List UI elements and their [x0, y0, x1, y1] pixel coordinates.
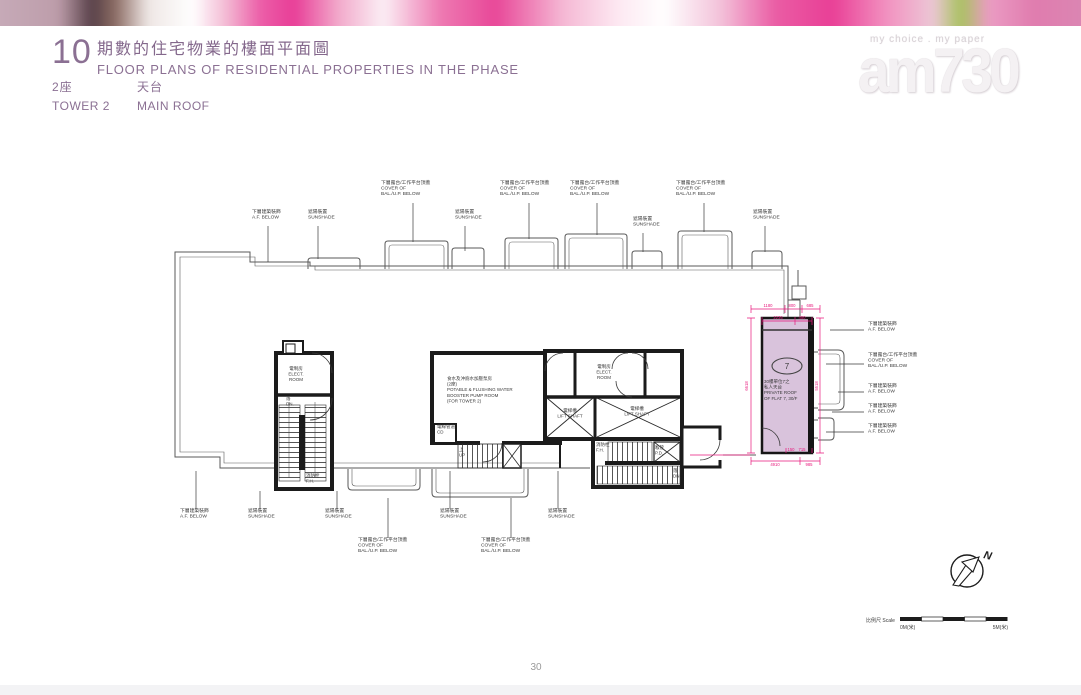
dimension-value: 6618: [744, 381, 749, 391]
callout-af: 下層建築裝飾A.F. BELOW: [826, 422, 897, 435]
scale-start: 0M(米): [900, 624, 916, 631]
flat7-number: 7: [785, 362, 790, 371]
footer-strip: [0, 685, 1081, 695]
callout-cover: 下層露台/工作平台頂蓋COVER OFBAL./U.P. BELOW: [381, 179, 431, 242]
north-letter: N: [982, 549, 994, 563]
callout-af: 下層建築裝飾A.F. BELOW: [832, 402, 897, 415]
callout-sunshade-label: 遮陽裝置SUNSHADE: [753, 208, 780, 221]
callout-cover: 下層露台/工作平台頂蓋COVER OFBAL./U.P. BELOW: [500, 179, 550, 239]
roof-bottom-tabs: [348, 469, 528, 497]
roof-right-tabs: [818, 350, 844, 440]
callout-sunshade: 遮陽裝置SUNSHADE: [325, 491, 352, 520]
page-number: 30: [524, 662, 548, 673]
callout-cover-label: 下層露台/工作平台頂蓋COVER OFBAL./U.P. BELOW: [481, 536, 531, 554]
callout-af: 下層建築裝飾A.F. BELOW: [830, 320, 897, 333]
dimension-value: 4910: [770, 462, 780, 467]
callout-sunshade-label: 遮陽裝置SUNSHADE: [440, 507, 467, 520]
callout-af: 下層建築裝飾A.F. BELOW: [838, 382, 897, 395]
callout-sunshade-label: 遮陽裝置SUNSHADE: [325, 507, 352, 520]
callout-sunshade: 遮陽裝置SUNSHADE: [548, 471, 575, 520]
callout-sunshade-label: 遮陽裝置SUNSHADE: [248, 507, 275, 520]
callout-sunshade-label: 遮陽裝置SUNSHADE: [633, 215, 660, 228]
elect-room-left: 電制房ELECT.ROOM: [288, 365, 303, 382]
floor-plan-drawing: 7 下層建築裝飾A.F. BELOW遮陽裝置SUNSHADE下層露台/工作平台頂…: [0, 0, 1081, 695]
callout-af-label: 下層建築裝飾A.F. BELOW: [868, 422, 897, 435]
callout-af: 下層建築裝飾A.F. BELOW: [180, 471, 209, 520]
elect-room-right: 電制房ELECT.ROOM: [596, 363, 611, 380]
roof-top-tabs: [308, 231, 782, 269]
callout-sunshade: 遮陽裝置SUNSHADE: [308, 208, 335, 259]
callout-sunshade: 遮陽裝置SUNSHADE: [633, 215, 660, 252]
callout-cover-label: 下層露台/工作平台頂蓋COVER OFBAL./U.P. BELOW: [500, 179, 550, 197]
callout-af-label: 下層建築裝飾A.F. BELOW: [868, 402, 897, 415]
callout-cover: 下層露台/工作平台頂蓋COVER OFBAL./U.P. BELOW: [358, 498, 408, 554]
callout-af-label: 下層建築裝飾A.F. BELOW: [252, 208, 281, 221]
scale-label: 比例尺 Scale: [866, 617, 895, 624]
callout-cover: 下層露台/工作平台頂蓋COVER OFBAL./U.P. BELOW: [570, 179, 620, 235]
core-block: [545, 351, 723, 487]
callout-cover-label: 下層露台/工作平台頂蓋COVER OFBAL./U.P. BELOW: [358, 536, 408, 554]
callout-cover-label: 下層露台/工作平台頂蓋COVER OFBAL./U.P. BELOW: [381, 179, 431, 197]
callout-sunshade: 遮陽裝置SUNSHADE: [753, 208, 780, 252]
scale-end: 5M(米): [993, 624, 1009, 631]
north-compass: N: [951, 549, 994, 587]
pipe-duct: 喉管P.D.: [655, 444, 664, 456]
left-stair-block: [276, 341, 332, 489]
dimension-value: 685: [807, 303, 815, 308]
callout-cover-label: 下層露台/工作平台頂蓋COVER OFBAL./U.P. BELOW: [570, 179, 620, 197]
dimension-value: 2235: [773, 315, 783, 320]
callout-sunshade: 遮陽裝置SUNSHADE: [455, 208, 482, 251]
scale-bar: 比例尺 Scale 0M(米) 5M(米): [866, 617, 1008, 631]
callout-cover-label: 下層露台/工作平台頂蓋COVER OFBAL./U.P. BELOW: [868, 351, 918, 369]
callout-cover-label: 下層露台/工作平台頂蓋COVER OFBAL./U.P. BELOW: [676, 179, 726, 197]
callout-cover: 下層露台/工作平台頂蓋COVER OFBAL./U.P. BELOW: [481, 498, 531, 554]
dimension-value: 450: [799, 315, 807, 320]
callout-sunshade: 遮陽裝置SUNSHADE: [248, 491, 275, 520]
dimension-value: 985: [806, 462, 814, 467]
callout-af-label: 下層建築裝飾A.F. BELOW: [868, 382, 897, 395]
callout-sunshade-label: 遮陽裝置SUNSHADE: [455, 208, 482, 221]
callout-cover: 下層露台/工作平台頂蓋COVER OFBAL./U.P. BELOW: [676, 179, 726, 232]
dimension-value: 1180: [763, 303, 773, 308]
dimension-value: 5518: [814, 381, 819, 391]
callout-af: 下層建築裝飾A.F. BELOW: [252, 208, 281, 262]
callout-sunshade-label: 遮陽裝置SUNSHADE: [548, 507, 575, 520]
callout-sunshade-label: 遮陽裝置SUNSHADE: [308, 208, 335, 221]
callout-af-label: 下層建築裝飾A.F. BELOW: [868, 320, 897, 333]
dimension-value: 150: [788, 447, 796, 452]
pump-room-block: [432, 353, 560, 468]
callout-af-label: 下層建築裝飾A.F. BELOW: [180, 507, 209, 520]
dimension-value: 800: [789, 303, 797, 308]
callout-sunshade: 遮陽裝置SUNSHADE: [440, 471, 467, 520]
dimension-value: 715: [799, 447, 807, 452]
